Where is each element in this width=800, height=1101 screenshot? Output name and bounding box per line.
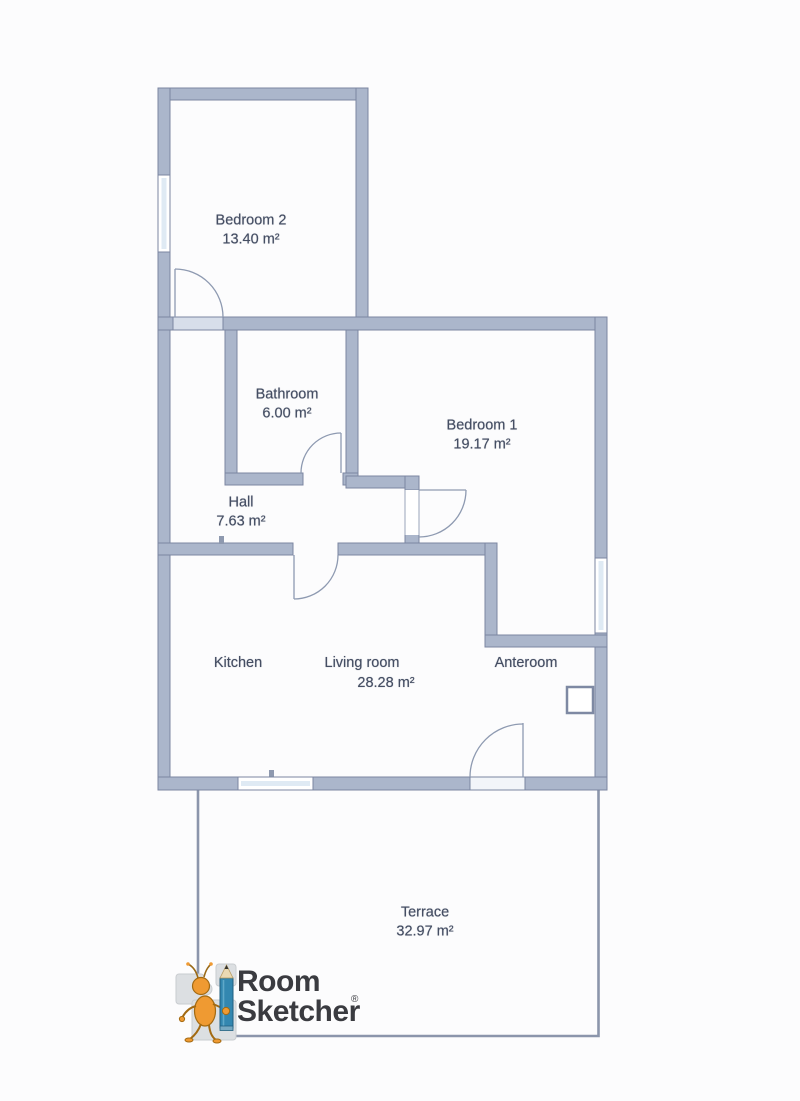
antenna-tip bbox=[186, 962, 190, 966]
antenna-tip bbox=[209, 962, 213, 966]
wall-bottom-mid bbox=[313, 777, 470, 790]
window-kitchen-glass bbox=[241, 781, 310, 786]
wall-right-upper bbox=[595, 317, 607, 558]
wall-anteroom-top bbox=[485, 635, 607, 647]
ant-foot bbox=[185, 1038, 193, 1042]
registered-trademark-symbol: ® bbox=[351, 994, 359, 1005]
room-name: Terrace bbox=[396, 904, 453, 923]
threshold-bedroom2-door bbox=[173, 317, 223, 330]
room-label-bedroom1: Bedroom 1 19.17 m² bbox=[447, 417, 518, 454]
room-name: Hall bbox=[216, 494, 265, 513]
room-name: Kitchen bbox=[214, 654, 262, 673]
room-area-living-room: 28.28 m² bbox=[357, 674, 414, 693]
wall-hall-living-left bbox=[158, 543, 293, 555]
room-name: Bedroom 1 bbox=[447, 417, 518, 436]
ant-hand-right bbox=[222, 1007, 229, 1014]
door-swing-arc bbox=[301, 433, 341, 473]
door-swing-arc bbox=[175, 269, 223, 317]
room-label-terrace: Terrace 32.97 m² bbox=[396, 904, 453, 941]
room-area: 6.00 m² bbox=[256, 404, 319, 423]
wall-hall-living-right bbox=[338, 543, 497, 555]
ant-body bbox=[195, 996, 216, 1026]
window-bedroom2-glass bbox=[162, 178, 167, 249]
wall-bathroom-left bbox=[225, 330, 237, 485]
pencil-band bbox=[220, 1026, 233, 1031]
room-label-living-room: Living room bbox=[325, 654, 400, 673]
wall-top-main bbox=[223, 317, 607, 330]
room-area: 13.40 m² bbox=[216, 230, 287, 249]
wall-anteroom-vertical bbox=[485, 543, 497, 647]
room-area: 32.97 m² bbox=[396, 922, 453, 941]
wall-bedroom2-right bbox=[356, 88, 368, 329]
wall-right-lower bbox=[595, 633, 607, 790]
room-area: 19.17 m² bbox=[447, 435, 518, 454]
room-name: Living room bbox=[325, 654, 400, 673]
antenna bbox=[204, 964, 211, 977]
doorjamb-bedroom1-top bbox=[405, 476, 419, 490]
wall-bathroom-bedroom1 bbox=[346, 330, 358, 485]
room-label-bedroom2: Bedroom 2 13.40 m² bbox=[216, 212, 287, 249]
logo-mascot bbox=[176, 962, 236, 1043]
room-name: Bathroom bbox=[256, 386, 319, 405]
divider-tick-hall bbox=[219, 536, 224, 544]
door-living-room bbox=[294, 555, 338, 599]
room-label-hall: Hall 7.63 m² bbox=[216, 494, 265, 531]
door-bathroom bbox=[301, 433, 341, 473]
ant-hand-left bbox=[179, 1016, 184, 1021]
room-area: 7.63 m² bbox=[216, 512, 265, 531]
duct-shaft-box bbox=[567, 687, 593, 713]
logo-wordmark-line2: Sketcher bbox=[237, 995, 361, 1028]
door-bedroom2 bbox=[175, 269, 223, 317]
wall-left-main bbox=[158, 252, 170, 790]
ant-foot bbox=[213, 1039, 221, 1043]
room-label-kitchen: Kitchen bbox=[214, 654, 262, 673]
doorway-bedroom1-opening bbox=[405, 490, 420, 535]
wall-bedroom2-top bbox=[158, 88, 368, 100]
threshold-entrance-door bbox=[470, 777, 525, 790]
ant-head bbox=[193, 978, 210, 995]
door-bedroom1 bbox=[419, 490, 466, 537]
room-label-bathroom: Bathroom 6.00 m² bbox=[256, 386, 319, 423]
logo-wordmark-line1: Room bbox=[237, 965, 320, 998]
wall-bathroom-bottom-left bbox=[225, 473, 303, 485]
door-swing-arc bbox=[419, 490, 466, 537]
door-entrance bbox=[470, 723, 523, 777]
wall-top-left-stub bbox=[158, 317, 175, 330]
logo-pencil bbox=[220, 965, 233, 1031]
door-swing-arc bbox=[470, 724, 523, 777]
pencil-barrel bbox=[220, 978, 233, 1028]
wall-bottom-right bbox=[525, 777, 607, 790]
window-anteroom-glass bbox=[599, 561, 604, 630]
wall-corridor-top bbox=[346, 476, 412, 488]
room-name: Bedroom 2 bbox=[216, 212, 287, 231]
roomsketcher-logo: Room Sketcher ® bbox=[176, 962, 361, 1043]
wall-bottom-left bbox=[158, 777, 238, 790]
room-area: 28.28 m² bbox=[357, 674, 414, 693]
wall-left-upper bbox=[158, 88, 170, 175]
door-swing-arc bbox=[294, 555, 338, 599]
floorplan-page: Room Sketcher ® Bedroom 2 13.40 m² Bathr… bbox=[0, 0, 800, 1101]
room-name: Anteroom bbox=[495, 654, 558, 673]
room-label-anteroom: Anteroom bbox=[495, 654, 558, 673]
